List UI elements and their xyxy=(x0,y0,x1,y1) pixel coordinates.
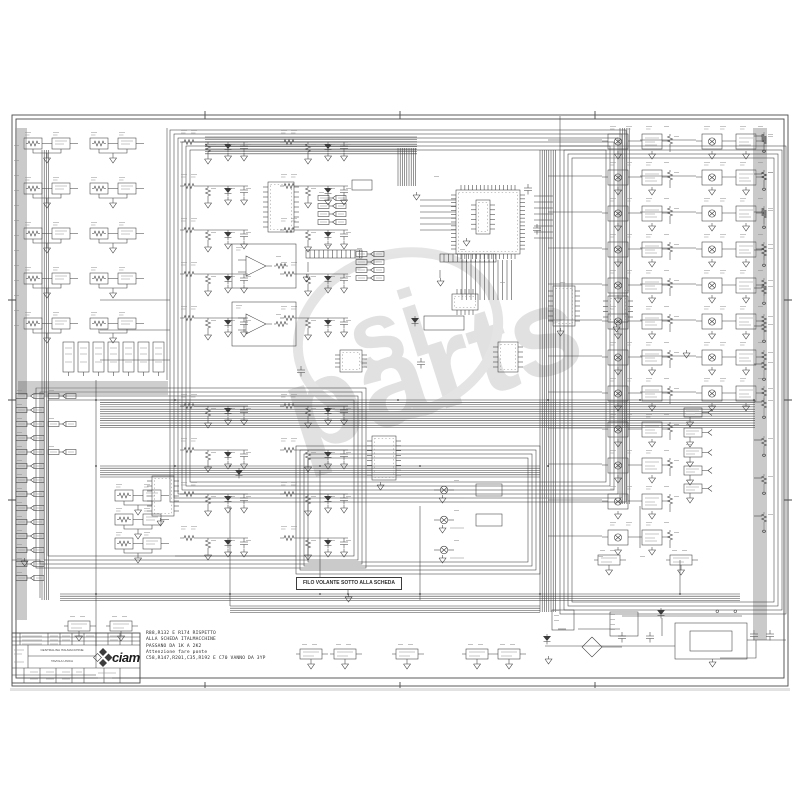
regblk-symbol xyxy=(392,645,424,670)
relayrectv-symbol xyxy=(93,342,104,376)
filo-volante-label: FILO VOLANTE SOTTO ALLA SCHEDA xyxy=(296,577,402,590)
filter-cell-symbol xyxy=(280,527,351,561)
driver-symbol xyxy=(696,307,773,340)
driver-symbol xyxy=(602,379,679,412)
schematic-canvas: parts si xyxy=(0,0,800,800)
opto-in-symbol xyxy=(90,133,144,164)
driver-symbol xyxy=(602,523,679,556)
capv-symbol xyxy=(618,632,626,643)
gnd-symbol xyxy=(709,659,716,667)
ic-chip xyxy=(451,185,525,259)
resterm-symbol xyxy=(762,512,774,533)
opampbox-symbol xyxy=(232,302,296,346)
netflag-symbol xyxy=(318,193,346,201)
resterm-symbol xyxy=(762,170,774,191)
opto-in-symbol xyxy=(24,268,78,299)
driver-symbol xyxy=(602,163,679,196)
filter-cell-symbol xyxy=(180,263,251,297)
driver-symbol xyxy=(696,343,773,376)
relayout-symbol xyxy=(434,481,464,504)
capv-symbol xyxy=(524,184,532,195)
driver-symbol xyxy=(602,199,679,232)
filter-cell-symbol xyxy=(280,219,351,253)
ciam-logo-text: ciam xyxy=(112,650,140,665)
netflag-symbol xyxy=(48,419,76,427)
filter-cell-symbol xyxy=(180,307,251,341)
watermark: parts si xyxy=(250,206,597,481)
term-symbol xyxy=(734,610,737,613)
regblk-symbol xyxy=(106,617,138,642)
opto-in-symbol xyxy=(90,178,144,209)
driver-symbol xyxy=(602,487,679,520)
note-line: C58,R147,R201,C35,R192 E C70 VANNO DA 3Y… xyxy=(146,656,272,662)
opto-in-symbol xyxy=(90,223,144,254)
filter-cell-symbol xyxy=(280,483,351,517)
resterm-symbol xyxy=(762,360,774,381)
relayrectv-symbol xyxy=(78,342,89,376)
netflag-symbol xyxy=(318,217,346,225)
regblk-symbol xyxy=(296,645,328,670)
regblk-symbol xyxy=(330,645,362,670)
filter-cell-symbol xyxy=(180,483,251,517)
relayrectv-symbol xyxy=(138,342,149,376)
driver-symbol xyxy=(602,343,679,376)
relayout-symbol xyxy=(434,511,464,534)
relayout-symbol xyxy=(434,541,464,564)
hdr12-symbol xyxy=(306,246,362,259)
filter-cell-symbol xyxy=(180,219,251,253)
relayrectv-symbol xyxy=(63,342,74,376)
resterm-symbol xyxy=(762,208,774,229)
filter-cell-symbol xyxy=(180,439,251,473)
opampbox-symbol xyxy=(232,244,296,288)
regblk-symbol xyxy=(666,551,698,576)
relayrectv-symbol xyxy=(153,342,164,376)
driver-symbol xyxy=(602,307,679,340)
title-block-title: CENTRALINA ITALMACCHINE xyxy=(30,648,94,652)
opto-in-symbol xyxy=(90,268,144,299)
driver-symbol xyxy=(602,235,679,268)
gnd-symbol xyxy=(437,278,444,286)
smalldrv-symbol xyxy=(684,481,712,504)
opto-in-symbol xyxy=(24,178,78,209)
filter-cell-symbol xyxy=(180,131,251,165)
smalldrv-symbol xyxy=(684,405,712,428)
driver-symbol xyxy=(696,379,773,412)
opto-in-symbol xyxy=(24,313,78,344)
smalldrv-symbol xyxy=(684,463,712,486)
driver-symbol xyxy=(602,271,679,304)
term-symbol xyxy=(716,610,719,613)
resterm-symbol xyxy=(762,132,774,153)
ciam-logo-mark xyxy=(94,648,113,667)
driver-symbol xyxy=(696,163,773,196)
gnd-symbol xyxy=(683,350,690,358)
handwritten-notes: R88,R132 E R174 RISPETTO ALLA SCHEDA ITA… xyxy=(146,631,272,662)
resterm-symbol xyxy=(762,322,774,343)
resterm-symbol xyxy=(762,398,774,419)
driver-symbol xyxy=(602,415,679,448)
resterm-symbol xyxy=(762,436,774,457)
dio-symbol xyxy=(657,608,665,618)
relayrectv-symbol xyxy=(108,342,119,376)
filter-cell-symbol xyxy=(280,175,351,209)
gnd-symbol xyxy=(545,656,552,664)
filter-cell-symbol xyxy=(280,131,351,165)
resterm-symbol xyxy=(762,474,774,495)
relayrectv-symbol xyxy=(123,342,134,376)
driver-symbol xyxy=(696,235,773,268)
filter-cell-symbol xyxy=(180,527,251,561)
gnd-symbol xyxy=(463,238,470,246)
driver-symbol xyxy=(602,451,679,484)
regblk-symbol xyxy=(462,645,494,670)
opto-in-symbol xyxy=(90,313,144,344)
title-block-subtitle: TAVOLA UNICA xyxy=(30,659,94,663)
opto-in-symbol xyxy=(115,533,169,564)
dio-symbol xyxy=(543,634,551,644)
ic-chip xyxy=(471,200,495,234)
regblk-symbol xyxy=(64,617,96,642)
netflag-symbol xyxy=(48,447,76,455)
smalldrv-symbol xyxy=(684,445,712,468)
resterm-symbol xyxy=(762,284,774,305)
schematic-sheet: parts si R88,R132 E R174 RISPETTO ALLA S… xyxy=(0,0,800,800)
opto-in-symbol xyxy=(115,485,169,516)
capv-symbol xyxy=(646,632,654,643)
filter-cell-symbol xyxy=(180,175,251,209)
gnd-symbol xyxy=(413,192,420,200)
regblk-symbol xyxy=(594,551,626,576)
opto-in-symbol xyxy=(24,133,78,164)
regblk-symbol xyxy=(494,645,526,670)
capv-symbol xyxy=(766,630,774,641)
opto-in-symbol xyxy=(24,223,78,254)
ic-chip xyxy=(263,182,299,232)
netflag-symbol xyxy=(318,209,346,217)
netflag-symbol xyxy=(48,391,76,399)
opto-in-symbol xyxy=(115,509,169,540)
